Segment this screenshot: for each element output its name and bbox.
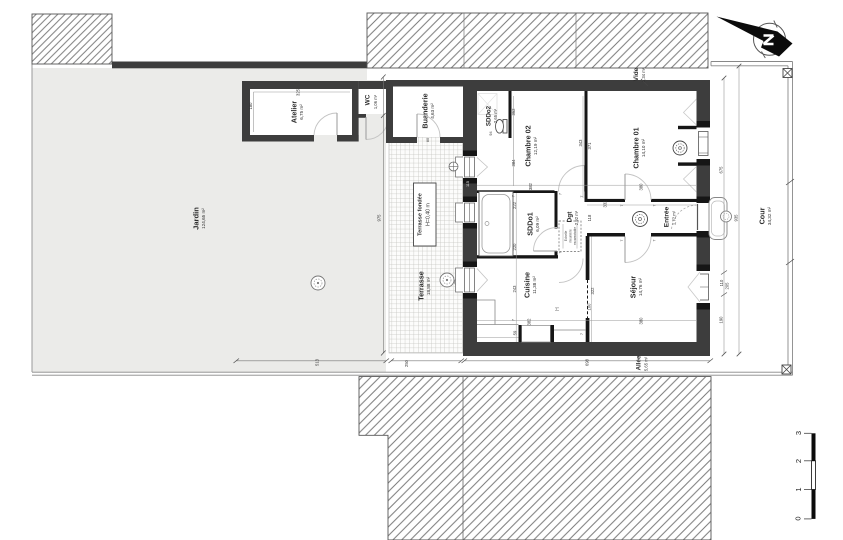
svg-text:513: 513: [315, 358, 320, 366]
svg-text:Entrée: Entrée: [664, 206, 671, 227]
svg-text:7: 7: [559, 193, 563, 195]
svg-text:Séjour: Séjour: [629, 276, 638, 299]
svg-text:118: 118: [587, 214, 592, 221]
svg-text:7: 7: [559, 251, 563, 253]
svg-text:110: 110: [719, 279, 724, 286]
svg-text:7: 7: [512, 319, 516, 321]
svg-text:7: 7: [653, 204, 657, 206]
svg-text:115: 115: [466, 181, 470, 187]
svg-text:382: 382: [527, 318, 532, 326]
svg-text:6,75 m²: 6,75 m²: [299, 104, 304, 120]
svg-text:4,63 m²: 4,63 m²: [430, 103, 435, 119]
svg-text:12,19 m²: 12,19 m²: [533, 136, 538, 155]
svg-text:384: 384: [511, 159, 516, 167]
svg-text:Chambre 02: Chambre 02: [524, 125, 533, 166]
svg-text:7: 7: [620, 204, 624, 206]
svg-text:7: 7: [580, 195, 584, 197]
svg-text:2,92 m²: 2,92 m²: [574, 210, 579, 225]
svg-text:7: 7: [512, 195, 516, 197]
svg-text:meunière: meunière: [569, 229, 573, 243]
svg-text:3: 3: [794, 431, 803, 435]
svg-text:1: 1: [794, 487, 803, 491]
svg-text:Allée: Allée: [636, 355, 643, 370]
svg-text:220: 220: [512, 243, 517, 251]
svg-text:14,76 m²: 14,76 m²: [638, 277, 643, 296]
svg-text:250: 250: [404, 359, 409, 367]
svg-text:382: 382: [528, 182, 533, 190]
svg-text:7: 7: [653, 239, 657, 241]
svg-text:380: 380: [639, 183, 644, 191]
svg-text:180: 180: [248, 102, 253, 110]
svg-text:7: 7: [620, 239, 624, 241]
svg-text:Cour: Cour: [758, 207, 767, 224]
svg-text:5,65 m²: 5,65 m²: [644, 356, 649, 371]
svg-text:6,09 m²: 6,09 m²: [535, 216, 540, 232]
svg-text:205: 205: [725, 282, 730, 290]
svg-text:343: 343: [578, 139, 583, 147]
svg-text:escamotable: escamotable: [573, 227, 577, 245]
svg-text:94: 94: [489, 131, 493, 135]
svg-text:243: 243: [512, 285, 517, 293]
svg-text:124,65 m²: 124,65 m²: [201, 208, 206, 229]
svg-text:Cuisine: Cuisine: [523, 272, 532, 298]
svg-text:352: 352: [511, 108, 516, 116]
svg-text:371: 371: [587, 142, 592, 150]
svg-text:11,38 m²: 11,38 m²: [532, 276, 537, 294]
svg-text:975: 975: [377, 214, 382, 222]
svg-text:WC: WC: [365, 94, 372, 105]
svg-text:322: 322: [590, 287, 595, 295]
svg-text:Atelier: Atelier: [290, 101, 299, 124]
svg-text:675: 675: [719, 166, 724, 174]
svg-text:Vide: Vide: [633, 67, 640, 81]
svg-text:698: 698: [585, 358, 590, 366]
svg-text:325: 325: [296, 88, 301, 96]
svg-text:222: 222: [512, 201, 517, 209]
svg-text:100: 100: [587, 303, 592, 311]
svg-text:7: 7: [580, 333, 584, 335]
svg-text:Chambre 01: Chambre 01: [632, 127, 641, 168]
svg-text:59: 59: [513, 330, 518, 335]
svg-text:2,65 m²: 2,65 m²: [493, 108, 498, 123]
svg-text:SDDo1: SDDo1: [526, 212, 535, 236]
svg-text:935: 935: [734, 214, 739, 222]
svg-text:14,10 m²: 14,10 m²: [641, 138, 646, 157]
svg-text:380: 380: [639, 317, 644, 325]
svg-text:80: 80: [426, 138, 430, 142]
svg-text:Terrasse fondée: Terrasse fondée: [418, 193, 424, 236]
svg-text:Terrasse: Terrasse: [417, 271, 426, 300]
svg-text:332: 332: [603, 200, 608, 208]
svg-text:190: 190: [719, 316, 724, 324]
svg-text:2: 2: [794, 459, 803, 463]
svg-text:1,06 m²: 1,06 m²: [373, 94, 378, 109]
svg-text:H=0,40 m: H=0,40 m: [426, 203, 432, 226]
svg-text:Echelle: Echelle: [564, 231, 568, 242]
svg-text:1,72 m²: 1,72 m²: [672, 210, 677, 225]
svg-text:H: H: [555, 307, 561, 311]
svg-text:34,32 m²: 34,32 m²: [767, 206, 772, 225]
svg-text:SDDo2: SDDo2: [486, 105, 493, 126]
svg-text:0: 0: [794, 516, 803, 520]
svg-text:18,88 m²: 18,88 m²: [426, 276, 431, 295]
svg-text:Buanderie: Buanderie: [421, 93, 430, 128]
svg-text:Jardin: Jardin: [192, 207, 201, 230]
svg-text:Dgt: Dgt: [567, 211, 574, 223]
